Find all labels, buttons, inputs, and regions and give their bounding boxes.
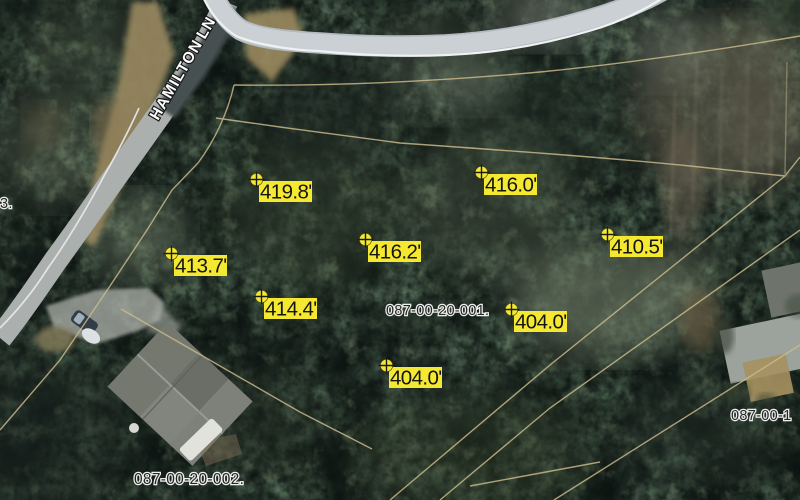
svg-text:410.5': 410.5' [611,236,663,259]
svg-text:3.: 3. [0,196,13,212]
svg-text:414.4': 414.4' [265,298,317,321]
svg-text:413.7': 413.7' [175,255,227,278]
svg-text:087-00-20-001.: 087-00-20-001. [386,303,489,319]
svg-text:087-00-1: 087-00-1 [731,408,791,424]
svg-text:404.0': 404.0' [390,367,442,390]
svg-text:419.8': 419.8' [260,181,312,204]
svg-text:087-00-20-002.: 087-00-20-002. [134,471,244,488]
svg-text:416.0': 416.0' [485,174,537,197]
svg-text:404.0': 404.0' [515,311,567,334]
svg-text:416.2': 416.2' [369,241,421,264]
